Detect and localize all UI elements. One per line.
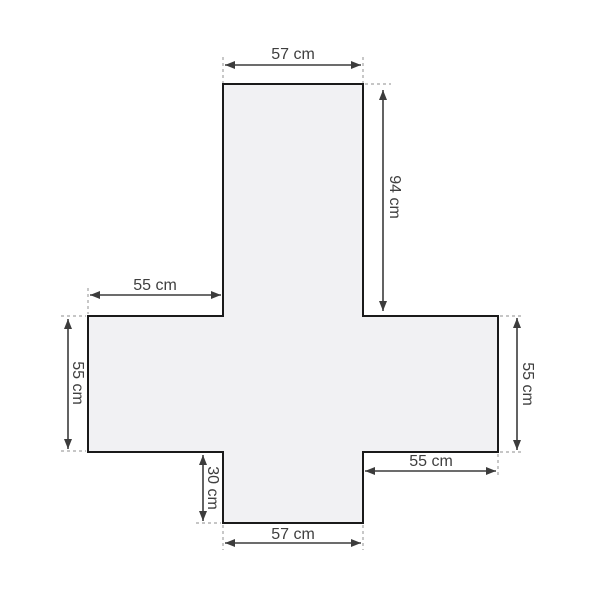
label-top-arm-height: 94 cm bbox=[386, 175, 403, 219]
label-bottom-notch-height: 30 cm bbox=[204, 466, 221, 510]
label-left-side-height: 55 cm bbox=[69, 361, 86, 405]
dimension-diagram: 57 cm 94 cm 55 cm 55 cm 55 cm 55 cm 30 c… bbox=[0, 0, 600, 600]
pattern-diagram-canvas: 57 cm 94 cm 55 cm 55 cm 55 cm 55 cm 30 c… bbox=[0, 0, 600, 600]
label-right-arm-width: 55 cm bbox=[409, 453, 453, 470]
label-left-arm-width: 55 cm bbox=[133, 277, 177, 294]
label-right-side-height: 55 cm bbox=[519, 362, 536, 406]
label-bottom-width: 57 cm bbox=[271, 526, 315, 543]
label-top-width: 57 cm bbox=[271, 46, 315, 63]
